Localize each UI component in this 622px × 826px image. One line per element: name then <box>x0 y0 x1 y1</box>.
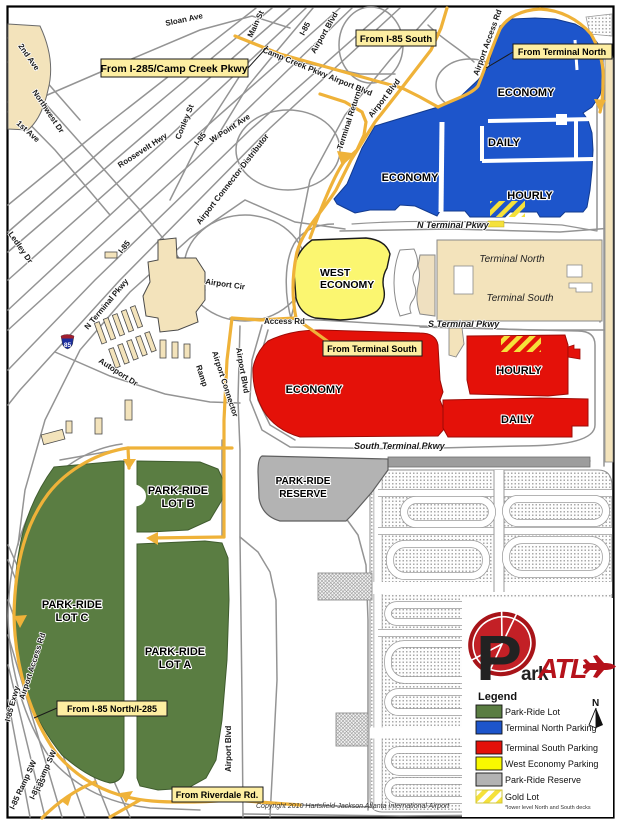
svg-text:ECONOMY: ECONOMY <box>498 87 556 99</box>
svg-text:*lower level North and South d: *lower level North and South decks <box>505 805 591 811</box>
svg-text:N: N <box>592 698 599 709</box>
svg-text:DAILY: DAILY <box>488 137 521 149</box>
svg-text:ECONOMY: ECONOMY <box>382 172 440 184</box>
svg-text:West Economy Parking: West Economy Parking <box>505 759 598 769</box>
svg-text:Terminal North: Terminal North <box>479 254 545 265</box>
svg-text:Gold Lot: Gold Lot <box>505 792 540 802</box>
svg-text:From Terminal South: From Terminal South <box>327 344 417 354</box>
svg-text:Copyright 2010 Hartsfield-Jack: Copyright 2010 Hartsfield-Jackson Atlant… <box>256 803 450 810</box>
svg-text:From Terminal North: From Terminal North <box>518 47 606 57</box>
svg-text:85: 85 <box>64 342 72 349</box>
svg-text:LOT B: LOT B <box>162 498 195 510</box>
svg-text:HOURLY: HOURLY <box>507 190 553 202</box>
svg-text:PARK-RIDE: PARK-RIDE <box>148 485 208 497</box>
svg-text:PARK-RIDE: PARK-RIDE <box>42 599 102 611</box>
svg-text:RESERVE: RESERVE <box>279 489 327 500</box>
svg-text:Legend: Legend <box>478 691 517 703</box>
svg-text:Terminal South: Terminal South <box>487 293 554 304</box>
svg-text:P: P <box>476 622 522 694</box>
svg-text:From I-285/Camp Creek Pkwy: From I-285/Camp Creek Pkwy <box>100 63 247 75</box>
svg-text:Park-Ride Reserve: Park-Ride Reserve <box>505 775 581 785</box>
svg-text:DAILY: DAILY <box>501 414 534 426</box>
svg-text:PARK-RIDE: PARK-RIDE <box>145 646 205 658</box>
svg-text:N Terminal Pkwy: N Terminal Pkwy <box>417 220 490 230</box>
svg-text:ECONOMY: ECONOMY <box>286 384 344 396</box>
svg-text:WEST: WEST <box>320 267 351 279</box>
svg-text:LOT C: LOT C <box>56 612 89 624</box>
svg-text:South Terminal Pkwy: South Terminal Pkwy <box>354 441 446 451</box>
svg-text:ATL: ATL <box>537 653 586 684</box>
svg-text:Park-Ride Lot: Park-Ride Lot <box>505 707 561 717</box>
svg-text:HOURLY: HOURLY <box>496 365 542 377</box>
svg-text:Access Rd: Access Rd <box>264 317 305 326</box>
svg-text:PARK-RIDE: PARK-RIDE <box>276 476 331 487</box>
svg-text:Airport Blvd: Airport Blvd <box>224 726 233 772</box>
svg-text:From I-85 North/I-285: From I-85 North/I-285 <box>67 704 157 714</box>
svg-text:Terminal South Parking: Terminal South Parking <box>505 743 598 753</box>
svg-text:LOT A: LOT A <box>159 659 192 671</box>
svg-text:Terminal North Parking: Terminal North Parking <box>505 723 597 733</box>
svg-text:From I-85 South: From I-85 South <box>360 34 433 45</box>
svg-text:From Riverdale Rd.: From Riverdale Rd. <box>176 790 259 800</box>
svg-text:ECONOMY: ECONOMY <box>320 279 374 291</box>
svg-text:S Terminal Pkwy: S Terminal Pkwy <box>428 319 500 329</box>
